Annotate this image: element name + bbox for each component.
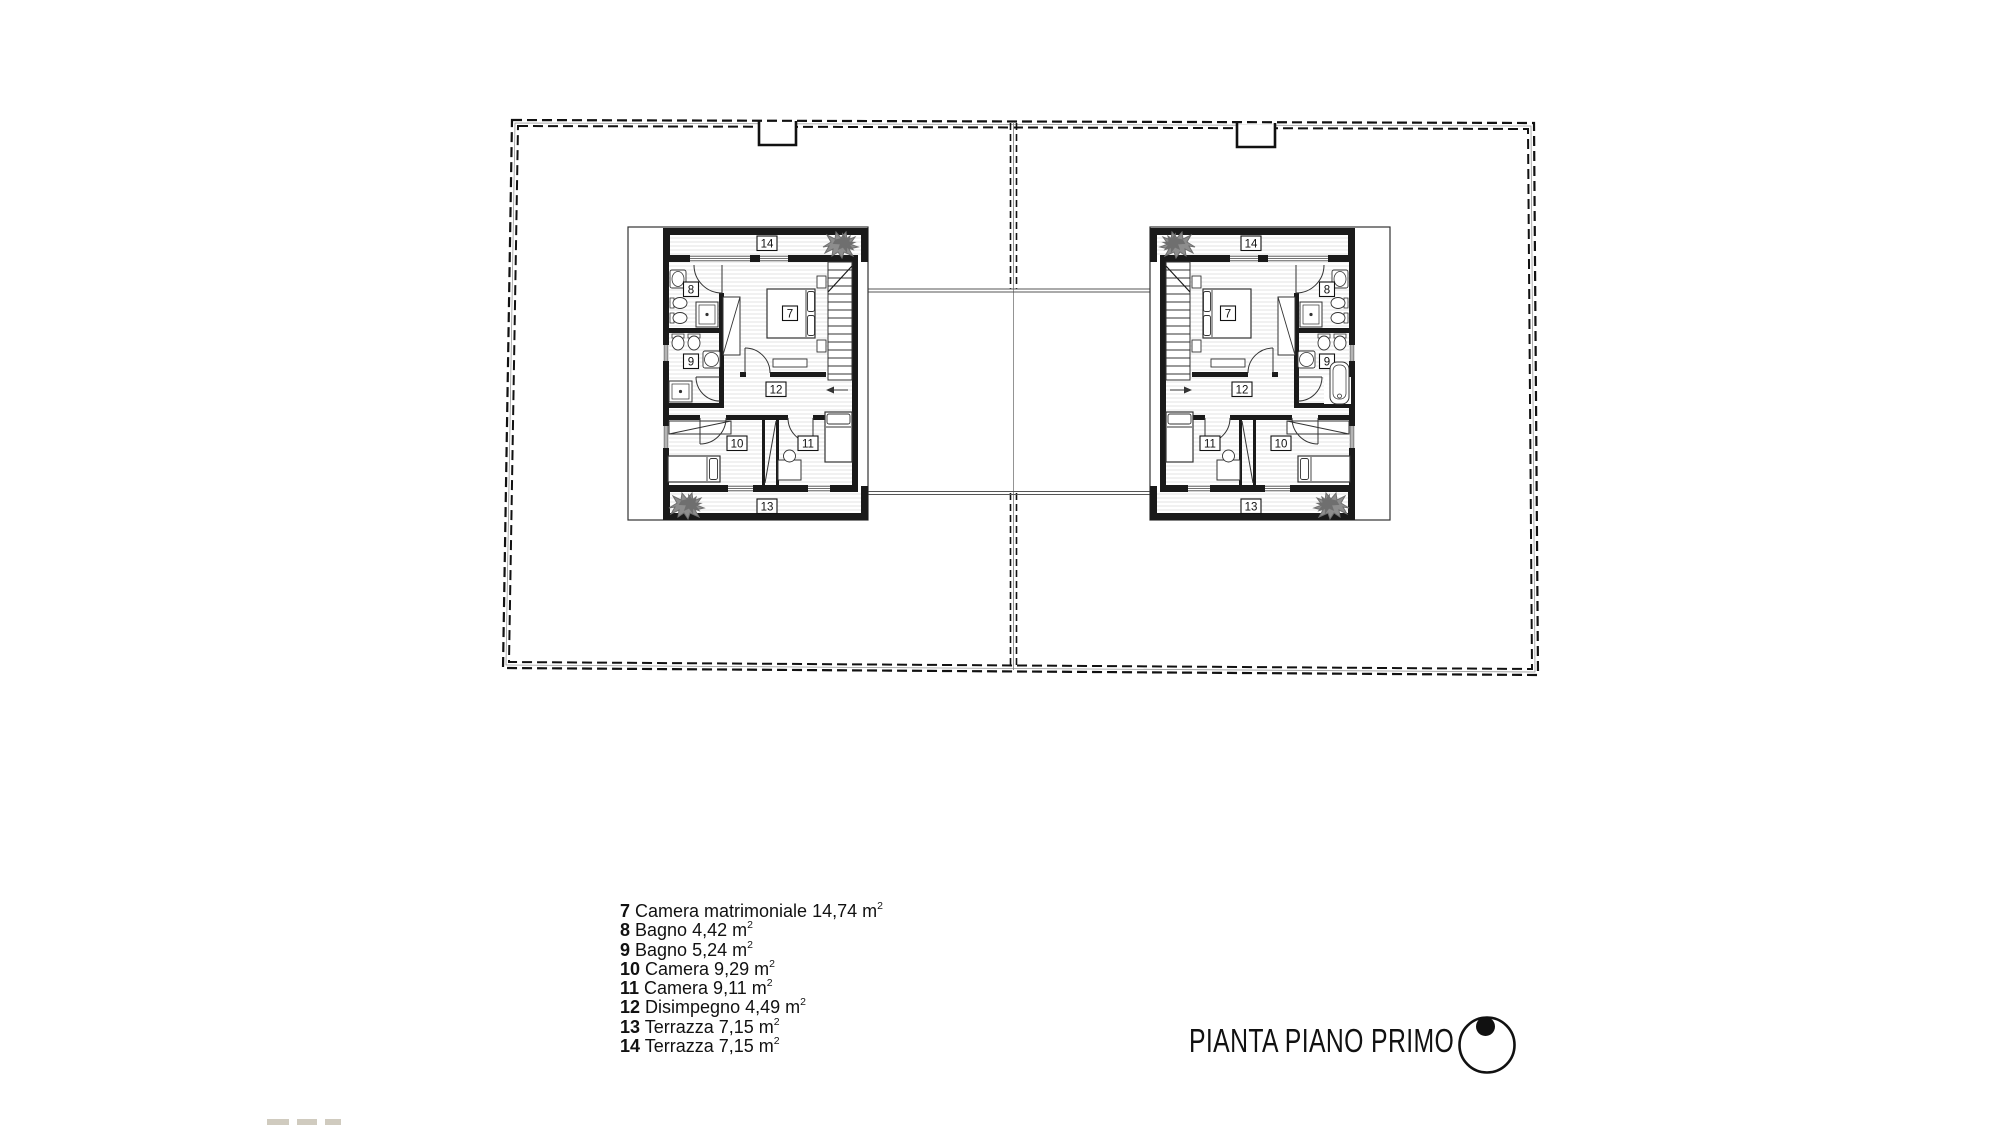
legend-sup: 2 <box>877 900 883 912</box>
property-divider <box>1011 122 1017 670</box>
boundary-notch-left <box>759 121 796 145</box>
legend-sup: 2 <box>769 958 775 970</box>
legend-text: Terrazza 7,15 m <box>640 1017 774 1037</box>
north-indicator-icon <box>1460 1017 1515 1073</box>
legend-text: Camera matrimoniale 14,74 m <box>630 901 877 921</box>
room-label-14-left: 14 <box>761 239 774 251</box>
legend-sup: 2 <box>747 919 753 931</box>
legend-number: 7 <box>620 901 630 921</box>
legend-sup: 2 <box>774 1035 780 1047</box>
legend-row: 10 Camera 9,29 m2 <box>620 960 883 979</box>
room-label-11-left: 11 <box>802 439 814 451</box>
legend-row: 14 Terrazza 7,15 m2 <box>620 1037 883 1056</box>
boundary-notch-right <box>1237 123 1275 147</box>
legend-number: 9 <box>620 940 630 960</box>
room-label-13-right: 13 <box>1245 502 1258 514</box>
legend-number: 11 <box>620 978 639 998</box>
legend-row: 8 Bagno 4,42 m2 <box>620 921 883 940</box>
room-label-11-right: 11 <box>1204 439 1216 451</box>
legend-row: 11 Camera 9,11 m2 <box>620 979 883 998</box>
room-label-12-right: 12 <box>1236 385 1249 397</box>
legend-text: Bagno 4,42 m <box>630 920 747 940</box>
site-boundary <box>503 120 1538 675</box>
room-legend: 7 Camera matrimoniale 14,74 m2 8 Bagno 4… <box>620 902 883 1056</box>
legend-number: 12 <box>620 997 640 1017</box>
room-label-7-right: 7 <box>1225 309 1231 321</box>
room-label-14-right: 14 <box>1245 239 1258 251</box>
unit-left <box>628 227 868 520</box>
legend-row: 9 Bagno 5,24 m2 <box>620 941 883 960</box>
floor-plan-canvas: 14 13 8 7 9 12 10 11 14 13 8 7 9 12 10 1… <box>0 0 2000 1125</box>
legend-number: 10 <box>620 959 640 979</box>
room-label-10-left: 10 <box>731 439 744 451</box>
floor-plan-page: 14 13 8 7 9 12 10 11 14 13 8 7 9 12 10 1… <box>0 0 2000 1125</box>
room-label-7-left: 7 <box>787 309 793 321</box>
legend-text: Bagno 5,24 m <box>630 940 747 960</box>
legend-text: Terrazza 7,15 m <box>640 1036 774 1056</box>
room-label-12-left: 12 <box>770 385 783 397</box>
legend-number: 8 <box>620 920 630 940</box>
legend-sup: 2 <box>747 939 753 951</box>
legend-text: Camera 9,29 m <box>640 959 769 979</box>
legend-sup: 2 <box>800 996 806 1008</box>
legend-row: 13 Terrazza 7,15 m2 <box>620 1018 883 1037</box>
room-label-9-right: 9 <box>1324 357 1330 369</box>
room-label-9-left: 9 <box>688 357 694 369</box>
room-label-13-left: 13 <box>761 502 774 514</box>
plan-title: PIANTA PIANO PRIMO <box>1189 1025 1454 1058</box>
room-label-8-right: 8 <box>1324 285 1330 297</box>
legend-sup: 2 <box>774 1016 780 1028</box>
legend-text: Disimpegno 4,49 m <box>640 997 800 1017</box>
legend-number: 14 <box>620 1036 640 1056</box>
legend-text: Camera 9,11 m <box>639 978 767 998</box>
legend-row: 12 Disimpegno 4,49 m2 <box>620 998 883 1017</box>
unit-connector-lines <box>868 289 1150 495</box>
unit-right <box>1150 227 1390 520</box>
legend-number: 13 <box>620 1017 640 1037</box>
room-label-10-right: 10 <box>1275 439 1288 451</box>
room-label-8-left: 8 <box>688 285 694 297</box>
legend-sup: 2 <box>767 977 773 989</box>
